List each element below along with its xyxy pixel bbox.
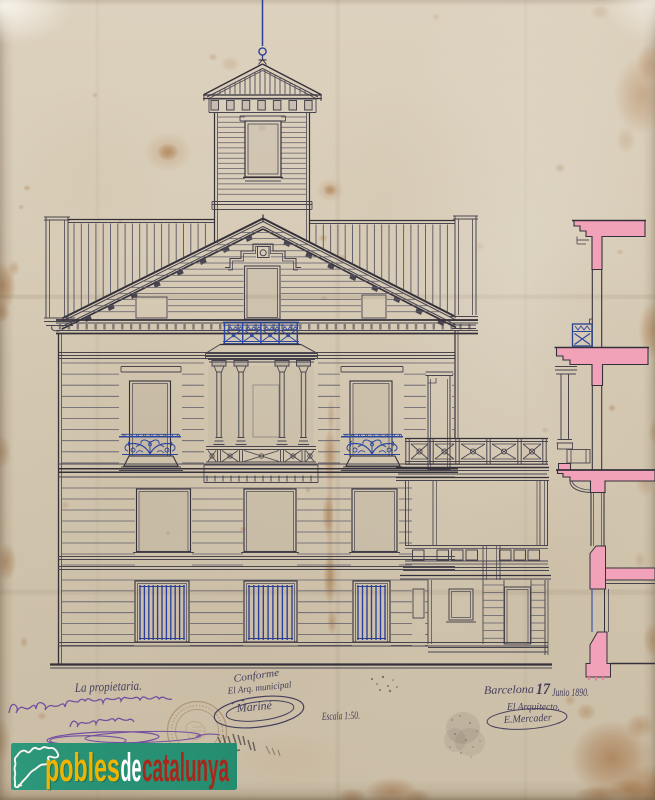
svg-text:El Arquitecto.: El Arquitecto. <box>506 702 560 713</box>
svg-text:pobles: pobles <box>45 746 120 790</box>
svg-text:La propietaria.: La propietaria. <box>74 678 142 695</box>
svg-text:catalunya: catalunya <box>142 746 229 790</box>
svg-text:E.Mercader: E.Mercader <box>503 712 553 726</box>
svg-text:Escala 1:50.: Escala 1:50. <box>321 710 360 723</box>
svg-text:17: 17 <box>536 681 551 698</box>
svg-text:de: de <box>121 746 142 790</box>
svg-text:Barcelona: Barcelona <box>484 684 535 697</box>
svg-text:Junio 1890.: Junio 1890. <box>552 687 589 699</box>
